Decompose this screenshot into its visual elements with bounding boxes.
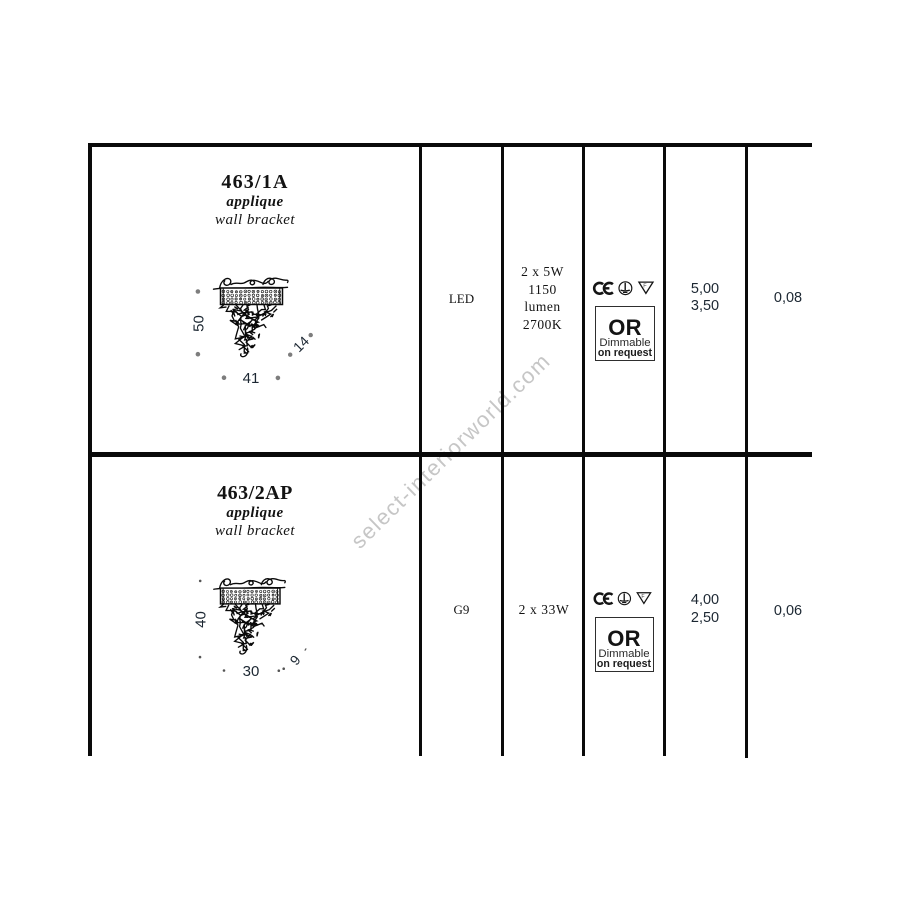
svg-text:F: F — [643, 284, 647, 290]
